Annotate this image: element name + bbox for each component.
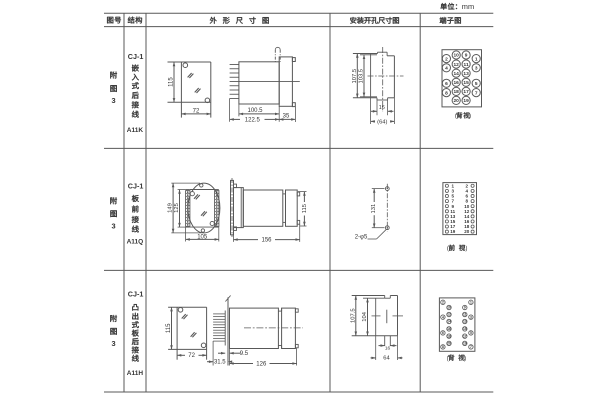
svg-text:17: 17: [463, 89, 469, 95]
svg-text:2: 2: [445, 56, 448, 62]
svg-text:104: 104: [362, 311, 368, 321]
svg-text:18: 18: [454, 89, 460, 95]
svg-text:11: 11: [464, 62, 469, 68]
svg-text:20: 20: [454, 98, 460, 104]
svg-text:35: 35: [283, 113, 290, 119]
svg-text:3: 3: [475, 66, 478, 72]
svg-text:20: 20: [447, 342, 451, 346]
svg-text:13: 13: [463, 71, 469, 77]
svg-text:CJ-1: CJ-1: [128, 181, 144, 190]
svg-text:1: 1: [475, 56, 478, 62]
svg-text:125: 125: [174, 203, 180, 213]
svg-text:3: 3: [112, 339, 116, 348]
svg-text:6: 6: [442, 331, 444, 335]
svg-text:(64): (64): [377, 119, 387, 125]
svg-text:8: 8: [445, 90, 448, 96]
svg-text:19: 19: [450, 229, 456, 234]
svg-text:15: 15: [463, 327, 467, 331]
svg-text:11: 11: [463, 313, 467, 317]
svg-text:9.5: 9.5: [240, 351, 249, 357]
svg-text:64: 64: [383, 356, 390, 362]
svg-text:7: 7: [475, 90, 478, 96]
svg-text:156: 156: [261, 237, 272, 243]
svg-text:10: 10: [447, 306, 451, 310]
svg-text:6: 6: [445, 81, 448, 87]
svg-text:31.5: 31.5: [214, 360, 226, 366]
svg-text:115: 115: [166, 323, 172, 333]
svg-text:17: 17: [463, 334, 467, 338]
svg-text:72: 72: [193, 109, 200, 115]
svg-text:): ): [469, 113, 471, 120]
svg-text:CJ-1: CJ-1: [128, 290, 144, 299]
svg-text:12: 12: [454, 62, 460, 68]
svg-text:19: 19: [463, 98, 469, 104]
svg-text:16: 16: [385, 345, 391, 351]
svg-text:105: 105: [197, 235, 208, 241]
svg-text:4: 4: [445, 66, 448, 72]
svg-text:A11H: A11H: [127, 370, 144, 377]
svg-text:4: 4: [442, 315, 444, 319]
svg-text:A11K: A11K: [127, 127, 144, 134]
svg-text:14: 14: [454, 71, 460, 77]
svg-text:): ): [465, 245, 467, 252]
svg-text:): ): [464, 355, 466, 362]
svg-text:3: 3: [470, 315, 472, 319]
svg-text:5: 5: [470, 331, 472, 335]
svg-text:103.5: 103.5: [359, 69, 365, 84]
svg-text:16: 16: [454, 80, 460, 86]
svg-text:15: 15: [463, 80, 469, 86]
svg-text:19: 19: [463, 342, 467, 346]
svg-text:20: 20: [464, 229, 470, 234]
svg-text:72: 72: [188, 353, 195, 359]
svg-text:9: 9: [465, 53, 468, 59]
svg-text:10: 10: [454, 53, 460, 59]
svg-text:3: 3: [112, 222, 116, 231]
svg-text:2: 2: [442, 300, 444, 304]
svg-text:126: 126: [256, 361, 267, 367]
svg-text:100.5: 100.5: [247, 108, 263, 114]
svg-text:8: 8: [442, 345, 444, 349]
svg-text:107.5: 107.5: [350, 308, 356, 323]
svg-text:13: 13: [463, 320, 467, 324]
svg-text:2-φ5: 2-φ5: [355, 234, 368, 240]
svg-text:CJ-1: CJ-1: [128, 52, 144, 61]
svg-text:7: 7: [470, 345, 472, 349]
svg-text:16: 16: [447, 327, 451, 331]
svg-text:9: 9: [464, 306, 466, 310]
svg-text:mm: mm: [462, 2, 474, 11]
svg-text:5: 5: [475, 81, 478, 87]
svg-text:14: 14: [447, 320, 451, 324]
svg-text:131: 131: [371, 204, 377, 214]
svg-text:115: 115: [302, 204, 308, 213]
svg-text:107.5: 107.5: [352, 69, 358, 84]
svg-text:1: 1: [470, 300, 472, 304]
svg-text:12: 12: [447, 313, 451, 317]
svg-text:3: 3: [112, 96, 116, 105]
svg-text:A11Q: A11Q: [127, 239, 144, 246]
svg-text:122.5: 122.5: [245, 117, 261, 123]
svg-text:18: 18: [447, 334, 451, 338]
svg-text:149: 149: [167, 203, 173, 213]
svg-text:115: 115: [168, 77, 174, 87]
svg-text:16: 16: [379, 105, 385, 111]
